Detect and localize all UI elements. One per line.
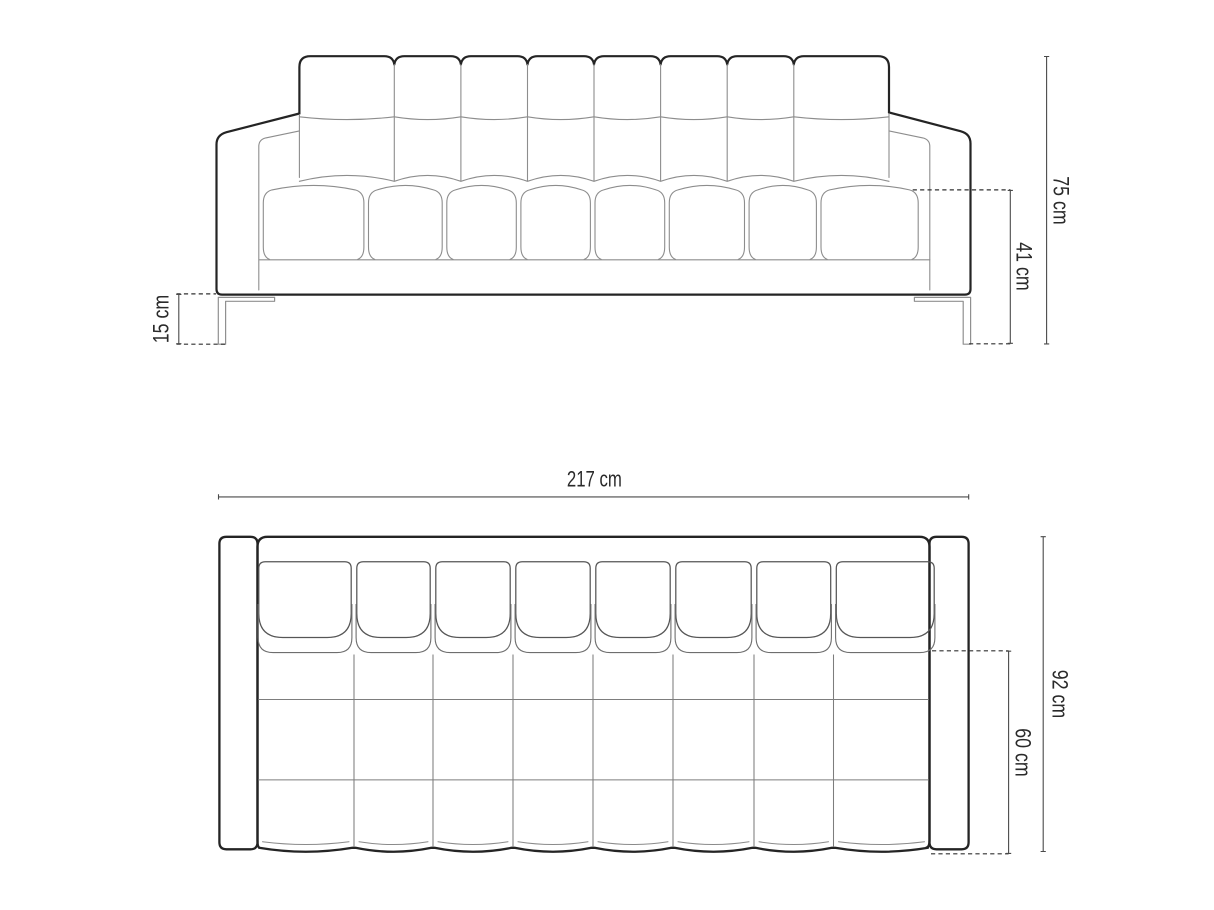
svg-text:75 cm: 75 cm — [1048, 176, 1073, 225]
svg-text:92 cm: 92 cm — [1048, 670, 1073, 719]
svg-text:41 cm: 41 cm — [1012, 242, 1037, 291]
svg-text:60 cm: 60 cm — [1011, 728, 1036, 777]
svg-text:217 cm: 217 cm — [567, 467, 622, 492]
svg-text:15 cm: 15 cm — [148, 295, 173, 344]
